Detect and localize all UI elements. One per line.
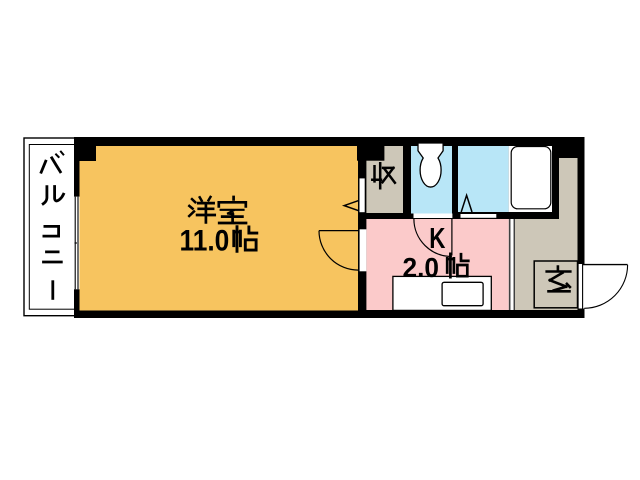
svg-text:2.0: 2.0 xyxy=(403,252,440,283)
svg-text:11.0: 11.0 xyxy=(180,224,230,257)
svg-text:K: K xyxy=(429,223,445,255)
